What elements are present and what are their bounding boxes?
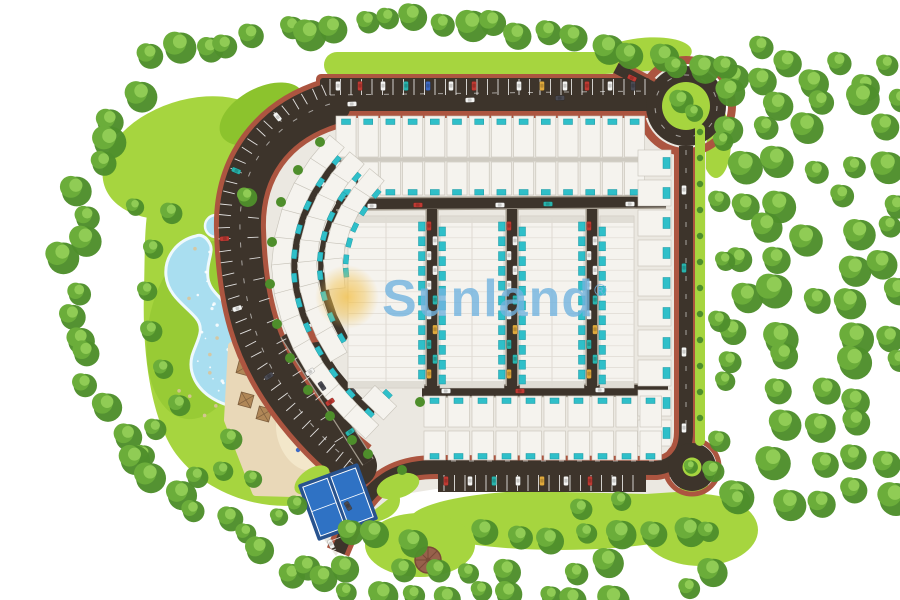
- swimmer-dot: [197, 294, 200, 297]
- pool: [430, 190, 439, 196]
- lounger-dot: [208, 371, 212, 375]
- tree: [719, 133, 727, 141]
- tree: [853, 222, 866, 235]
- pool: [430, 398, 439, 404]
- pool: [342, 119, 351, 125]
- pool: [439, 360, 446, 369]
- tree: [398, 561, 408, 571]
- car: [682, 185, 687, 194]
- tree: [149, 241, 157, 249]
- tree: [741, 286, 754, 299]
- tree: [363, 13, 373, 23]
- car: [381, 81, 386, 90]
- pool: [663, 428, 670, 439]
- car: [427, 221, 432, 230]
- car: [513, 355, 518, 364]
- swimmer-dot: [218, 390, 220, 392]
- street-palm: [276, 197, 286, 207]
- pool: [453, 119, 462, 125]
- car: [563, 81, 568, 90]
- tree: [128, 448, 141, 461]
- tree: [723, 119, 735, 131]
- tree: [856, 86, 870, 100]
- tree: [98, 153, 109, 164]
- tree: [407, 6, 419, 18]
- pool: [663, 218, 670, 229]
- pool: [526, 398, 535, 404]
- tree: [709, 463, 718, 472]
- car: [507, 369, 512, 378]
- pool: [541, 119, 550, 125]
- car: [588, 476, 593, 485]
- tree: [724, 81, 736, 93]
- tree: [834, 54, 844, 64]
- tree: [814, 416, 827, 429]
- pool: [550, 398, 559, 404]
- tree: [74, 285, 84, 295]
- tree: [67, 307, 78, 318]
- pool: [499, 237, 506, 246]
- tree: [377, 584, 390, 597]
- tree: [275, 510, 283, 518]
- tree: [582, 525, 591, 534]
- tree: [433, 561, 443, 571]
- watermark: Sunland®: [315, 265, 608, 329]
- tree: [624, 45, 635, 56]
- tree: [721, 373, 729, 381]
- pool: [454, 398, 463, 404]
- pool: [502, 454, 511, 460]
- pool: [646, 454, 655, 460]
- pool: [663, 308, 670, 319]
- tree: [884, 328, 895, 339]
- tree: [850, 325, 864, 339]
- tree: [725, 353, 734, 362]
- pool: [586, 119, 595, 125]
- tree: [151, 421, 160, 430]
- pool: [419, 237, 426, 246]
- pool: [564, 190, 573, 196]
- tree: [800, 115, 814, 129]
- tree: [407, 532, 419, 544]
- tree: [465, 13, 479, 27]
- swimmer-dot: [210, 307, 213, 310]
- tree: [167, 205, 176, 214]
- tree: [766, 449, 781, 464]
- tree: [409, 587, 418, 596]
- tree: [602, 551, 615, 564]
- street-palm: [267, 237, 277, 247]
- car: [336, 81, 341, 90]
- swimmer-dot: [212, 304, 214, 306]
- pool: [478, 398, 487, 404]
- swimmer-dot: [197, 360, 199, 362]
- pool: [579, 340, 586, 349]
- median-palm: [697, 311, 703, 317]
- pool: [419, 355, 426, 364]
- swimmer-dot: [201, 331, 204, 334]
- tree: [101, 395, 114, 408]
- pool: [497, 119, 506, 125]
- tree: [131, 200, 139, 208]
- car: [540, 81, 545, 90]
- car: [433, 355, 438, 364]
- car: [555, 95, 564, 100]
- tree: [767, 277, 782, 292]
- car: [507, 340, 512, 349]
- median-palm: [697, 129, 703, 135]
- car: [472, 81, 477, 90]
- tree: [783, 492, 797, 506]
- tree: [544, 530, 556, 542]
- car: [608, 81, 613, 90]
- tree: [227, 431, 236, 440]
- tree: [464, 565, 473, 574]
- car: [465, 97, 474, 102]
- pool: [317, 252, 323, 261]
- pool: [408, 119, 417, 125]
- pool: [663, 398, 670, 409]
- pool: [430, 119, 439, 125]
- pool: [519, 345, 526, 354]
- tree: [885, 218, 894, 227]
- tree: [734, 250, 745, 261]
- tree: [219, 463, 227, 471]
- pool: [502, 398, 511, 404]
- tree: [773, 381, 784, 392]
- pool: [386, 119, 395, 125]
- tree: [79, 375, 89, 385]
- car: [513, 236, 518, 245]
- street-palm: [285, 353, 295, 363]
- tree: [487, 12, 498, 23]
- watermark-brand: Sunland: [382, 270, 594, 328]
- pool: [541, 190, 550, 196]
- tree: [225, 509, 236, 520]
- tree: [688, 461, 694, 467]
- swimmer-dot: [206, 280, 208, 282]
- tree: [577, 501, 586, 510]
- tree: [254, 539, 266, 551]
- pool: [519, 360, 526, 369]
- tree: [122, 426, 134, 438]
- street-palm: [347, 435, 357, 445]
- tree: [778, 345, 790, 357]
- tree: [808, 72, 821, 85]
- car: [426, 81, 431, 90]
- pool: [599, 242, 606, 251]
- tree: [879, 116, 891, 128]
- tree: [881, 154, 895, 168]
- tree: [615, 523, 628, 536]
- tree: [242, 525, 251, 534]
- pool: [343, 255, 349, 264]
- tree: [812, 290, 823, 301]
- pool: [499, 252, 506, 261]
- median-palm: [697, 363, 703, 369]
- tree: [144, 46, 155, 57]
- tree: [761, 118, 771, 128]
- tree: [771, 249, 783, 261]
- tree: [442, 589, 453, 600]
- swimmer-dot: [215, 323, 218, 326]
- tree: [243, 189, 251, 197]
- tree: [602, 37, 615, 50]
- tree: [547, 588, 556, 597]
- tree: [812, 163, 822, 173]
- pool: [598, 398, 607, 404]
- pool: [622, 398, 631, 404]
- tree: [704, 523, 713, 532]
- car: [540, 476, 545, 485]
- tree: [720, 58, 730, 68]
- car: [358, 81, 363, 90]
- tree: [848, 447, 859, 458]
- tree: [883, 57, 892, 66]
- pool: [564, 119, 573, 125]
- median-palm: [697, 233, 703, 239]
- pool: [608, 190, 617, 196]
- pool: [453, 190, 462, 196]
- pool: [526, 454, 535, 460]
- tree: [511, 25, 523, 37]
- car: [682, 423, 687, 432]
- street-palm: [325, 411, 335, 421]
- pool: [439, 227, 446, 236]
- tree: [816, 493, 828, 505]
- tree: [732, 491, 743, 502]
- tree: [104, 111, 116, 123]
- watermark-sun-logo: [315, 265, 379, 329]
- tree: [757, 70, 769, 82]
- tree: [671, 59, 680, 68]
- median-palm: [697, 207, 703, 213]
- street-palm: [303, 385, 313, 395]
- pool: [663, 278, 670, 289]
- tree: [293, 497, 301, 505]
- tree: [346, 522, 357, 533]
- car: [444, 476, 449, 485]
- swimmer-dot: [208, 251, 211, 254]
- car: [593, 236, 598, 245]
- car: [507, 221, 512, 230]
- street-palm: [315, 137, 325, 147]
- car: [507, 251, 512, 260]
- pool: [599, 316, 606, 325]
- pool: [599, 345, 606, 354]
- pool: [599, 257, 606, 266]
- car: [347, 101, 356, 106]
- car: [367, 204, 376, 209]
- lounger-dot: [187, 297, 191, 301]
- street-palm: [397, 465, 407, 475]
- tree: [82, 208, 92, 218]
- tree: [438, 16, 448, 26]
- tree: [782, 53, 794, 65]
- pool: [454, 454, 463, 460]
- pool: [519, 375, 526, 384]
- car: [441, 389, 450, 394]
- pool: [574, 398, 583, 404]
- lounger-dot: [215, 336, 219, 340]
- tree: [848, 259, 861, 272]
- car: [220, 236, 229, 241]
- tree: [820, 454, 831, 465]
- tree: [303, 22, 317, 36]
- pool: [519, 190, 528, 196]
- swimmer-dot: [205, 271, 208, 274]
- swimmer-dot: [221, 379, 224, 382]
- lounger-dot: [208, 353, 212, 357]
- pergola: [238, 392, 254, 408]
- tree: [821, 380, 833, 392]
- pool: [475, 119, 484, 125]
- lounger-dot: [214, 404, 218, 408]
- median-palm: [697, 259, 703, 265]
- pool: [386, 190, 395, 196]
- pool: [439, 257, 446, 266]
- tree: [477, 583, 486, 592]
- pool: [475, 190, 484, 196]
- pool: [519, 227, 526, 236]
- car: [495, 203, 504, 208]
- street-palm: [415, 397, 425, 407]
- pool: [663, 248, 670, 259]
- car: [682, 263, 687, 272]
- pool: [499, 355, 506, 364]
- pool: [599, 227, 606, 236]
- tree: [659, 46, 671, 58]
- tree: [143, 283, 151, 291]
- pool: [663, 188, 670, 199]
- car: [404, 81, 409, 90]
- car: [587, 251, 592, 260]
- car: [682, 347, 687, 356]
- car: [625, 202, 634, 207]
- tree: [715, 433, 724, 442]
- tree: [876, 253, 889, 266]
- tree: [837, 187, 847, 197]
- tree: [175, 483, 188, 496]
- pool: [663, 158, 670, 169]
- pool: [364, 119, 373, 125]
- street-palm: [363, 449, 373, 459]
- tree: [302, 558, 313, 569]
- car: [631, 81, 636, 90]
- pool: [599, 271, 606, 280]
- car: [585, 81, 590, 90]
- pool: [519, 242, 526, 251]
- car: [543, 202, 552, 207]
- tree: [770, 149, 784, 163]
- tree: [715, 313, 724, 322]
- tree: [816, 93, 827, 104]
- tree: [327, 18, 339, 30]
- car: [449, 81, 454, 90]
- car: [587, 340, 592, 349]
- tree: [774, 325, 789, 340]
- pool: [430, 454, 439, 460]
- watermark-registered: ®: [594, 281, 608, 300]
- tree: [843, 291, 856, 304]
- tree: [850, 391, 862, 403]
- tree: [80, 343, 91, 354]
- pool: [519, 331, 526, 340]
- tree: [159, 361, 167, 369]
- pool: [519, 119, 528, 125]
- pool: [419, 340, 426, 349]
- car: [612, 476, 617, 485]
- car: [427, 251, 432, 260]
- pool: [439, 242, 446, 251]
- pool: [478, 454, 487, 460]
- tree: [383, 10, 392, 19]
- pool: [419, 222, 426, 231]
- tree: [648, 524, 659, 535]
- pool: [439, 331, 446, 340]
- car: [433, 236, 438, 245]
- parking-stripe: [218, 227, 230, 228]
- tree: [847, 349, 862, 364]
- car: [564, 476, 569, 485]
- tree: [706, 561, 719, 574]
- tree: [778, 412, 792, 426]
- median-palm: [697, 389, 703, 395]
- swimmer-dot: [212, 378, 214, 380]
- pool: [663, 338, 670, 349]
- street-palm: [293, 165, 303, 175]
- lounger-dot: [203, 414, 207, 418]
- tree: [79, 228, 92, 241]
- pool: [574, 454, 583, 460]
- swimmer-dot: [209, 366, 211, 368]
- pool: [408, 190, 417, 196]
- pool: [439, 375, 446, 384]
- pool: [519, 257, 526, 266]
- tree: [193, 469, 202, 478]
- pool: [579, 370, 586, 379]
- car: [427, 369, 432, 378]
- tree: [772, 94, 785, 107]
- tree: [342, 584, 351, 593]
- pool: [663, 368, 670, 379]
- pool: [497, 190, 506, 196]
- median-palm: [697, 337, 703, 343]
- street-palm: [265, 279, 275, 289]
- tree: [572, 565, 582, 575]
- lounger-dot: [177, 389, 181, 393]
- tree: [368, 523, 380, 535]
- median-palm: [697, 155, 703, 161]
- tree: [740, 196, 752, 208]
- tree: [318, 568, 329, 579]
- tree: [543, 23, 554, 34]
- tree: [339, 558, 351, 570]
- tree: [479, 521, 490, 532]
- tree: [772, 194, 786, 208]
- tree: [220, 37, 230, 47]
- pool: [550, 454, 559, 460]
- car: [587, 369, 592, 378]
- tree: [188, 502, 198, 512]
- pool: [622, 454, 631, 460]
- lounger-dot: [188, 394, 192, 398]
- alley: [336, 158, 646, 162]
- tree: [69, 179, 82, 192]
- pool: [499, 370, 506, 379]
- tree: [851, 411, 862, 422]
- tree: [756, 38, 766, 48]
